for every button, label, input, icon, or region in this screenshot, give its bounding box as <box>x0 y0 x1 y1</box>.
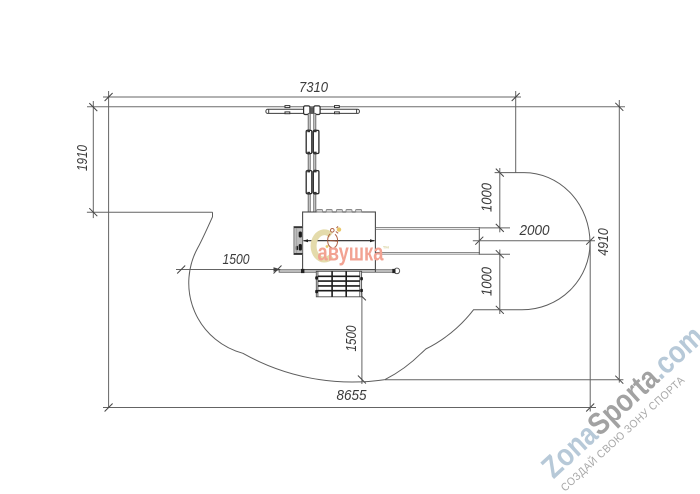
svg-text:ZonaSporta.com: ZonaSporta.com <box>535 319 700 485</box>
svg-text:2000: 2000 <box>519 222 550 239</box>
svg-text:1000: 1000 <box>478 266 495 296</box>
svg-text:™: ™ <box>383 246 390 253</box>
svg-text:авушка: авушка <box>318 240 384 267</box>
svg-text:1910: 1910 <box>74 144 91 171</box>
svg-text:1500: 1500 <box>343 325 360 352</box>
svg-text:1000: 1000 <box>478 182 495 212</box>
svg-text:4910: 4910 <box>595 228 612 256</box>
svg-text:1500: 1500 <box>223 251 251 268</box>
svg-text:7310: 7310 <box>299 79 329 96</box>
svg-text:8655: 8655 <box>337 387 368 404</box>
